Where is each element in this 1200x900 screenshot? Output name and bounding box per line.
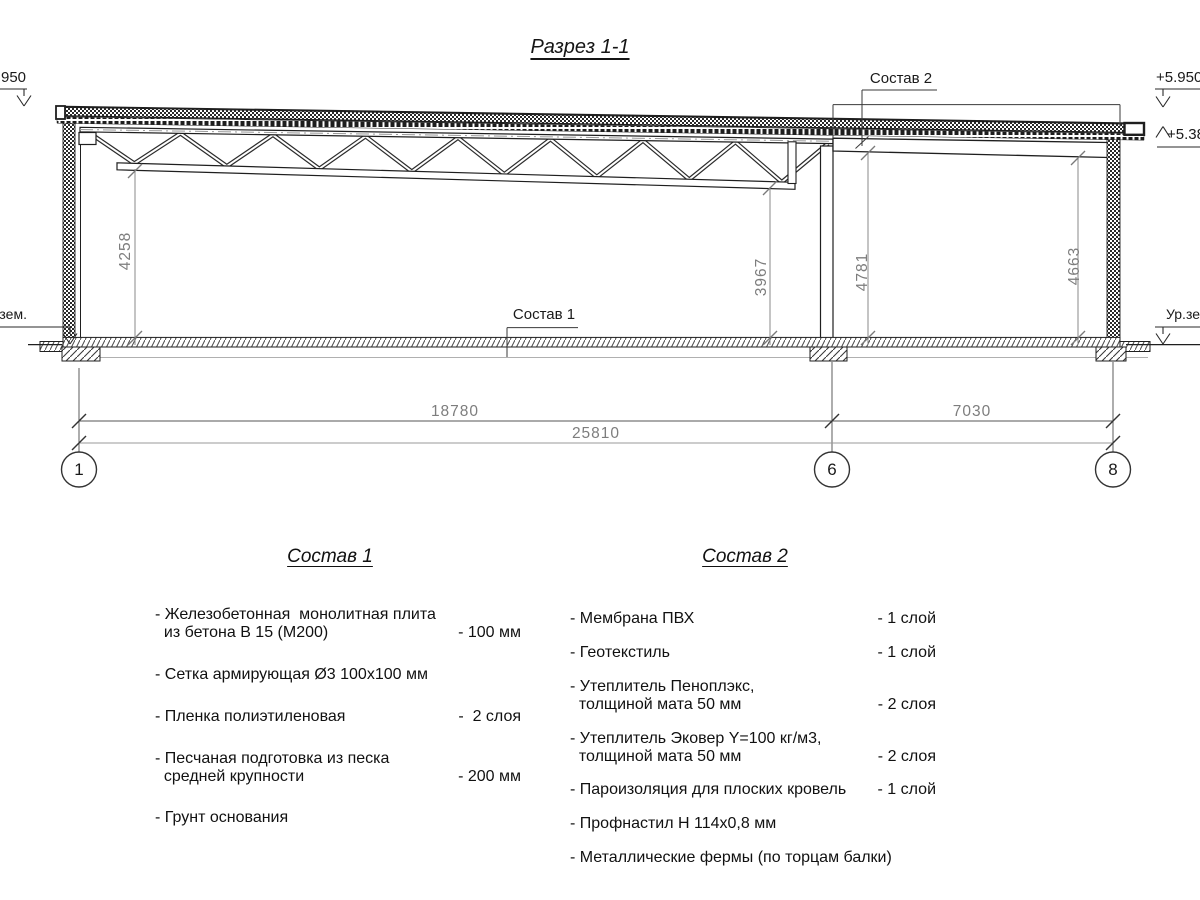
roof-left-cap (56, 106, 65, 119)
spec-item-value: - 1 слой (870, 610, 936, 628)
spec1-title: Состав 1 (230, 546, 430, 568)
spec-item-text: - Песчаная подготовка из песка средней к… (155, 750, 389, 786)
dim-height-4781: 4781 (854, 237, 872, 307)
roof-right-cap (1125, 123, 1145, 135)
roof-beam (833, 138, 1108, 157)
spec-item-value: - 2 слоя (870, 696, 936, 714)
spec-item: - Утеплитель Эковер Y=100 кг/м3, толщино… (570, 730, 936, 766)
spec2-title: Состав 2 (645, 546, 845, 568)
spec-item: - Пароизоляция для плоских кровель- 1 сл… (570, 781, 936, 799)
elevation-left-value: +5.950 (0, 69, 26, 86)
right-wall (1107, 136, 1120, 338)
axis-label-1: 1 (66, 460, 92, 480)
spec-item-value: - 2 слоя (870, 748, 936, 766)
spec-item-value: - 1 слой (870, 781, 936, 799)
spec-item-value: - 2 слоя (450, 708, 521, 726)
axis-label-6: 6 (819, 460, 845, 480)
spec-item: - Грунт основания (155, 809, 521, 827)
steel-truss (79, 127, 833, 189)
spec-item-text: - Утеплитель Эковер Y=100 кг/м3, толщино… (570, 730, 821, 766)
column-axis-6 (821, 146, 834, 338)
spec-item-value: - 100 мм (450, 624, 521, 642)
dim-height-4258: 4258 (117, 216, 135, 286)
axis-label-8: 8 (1100, 460, 1126, 480)
dim-span-18780: 18780 (385, 403, 525, 421)
foundations (62, 347, 1126, 361)
dim-height-4663: 4663 (1066, 231, 1084, 301)
spec-item-text: - Металлические фермы (по торцам балки) (570, 849, 892, 867)
composition2-callout: Состав 2 (863, 70, 939, 87)
drawing-title: Разрез 1-1 (460, 36, 700, 59)
left-wall (63, 107, 81, 338)
spec-item: - Утеплитель Пеноплэкс, толщиной мата 50… (570, 678, 936, 714)
dim-span-7030: 7030 (902, 403, 1042, 421)
spec-item: - Сетка армирующая Ø3 100х100 мм (155, 666, 521, 684)
spec1-list: - Железобетонная монолитная плита из бет… (155, 606, 521, 851)
spec-item: - Пленка полиэтиленовая- 2 слоя (155, 708, 521, 726)
spec-item: - Металлические фермы (по торцам балки) (570, 849, 936, 867)
spec-item: - Геотекстиль- 1 слой (570, 644, 936, 662)
spec-item-text: - Пароизоляция для плоских кровель (570, 781, 846, 799)
spec-item-text: - Профнастил Н 114х0,8 мм (570, 815, 776, 833)
spec-item-text: - Сетка армирующая Ø3 100х100 мм (155, 666, 428, 684)
spec-item-text: - Железобетонная монолитная плита из бет… (155, 606, 436, 642)
spec-item: - Мембрана ПВХ- 1 слой (570, 610, 936, 628)
spec-item: - Железобетонная монолитная плита из бет… (155, 606, 521, 642)
vertical-dimensions (128, 146, 1085, 345)
ground-level-label-right: Ур.зем. (1166, 306, 1200, 322)
spec-item-text: - Мембрана ПВХ (570, 610, 694, 628)
spec-item: - Профнастил Н 114х0,8 мм (570, 815, 936, 833)
spec-item-text: - Грунт основания (155, 809, 288, 827)
floor-slab (40, 337, 1150, 351)
dim-height-3967: 3967 (753, 242, 771, 312)
elevation-right-mid-value: +5.380 (1167, 126, 1200, 143)
composition1-callout: Состав 1 (506, 306, 582, 323)
ground-level-label-left: Ур.зем. (0, 306, 27, 322)
dim-total-25810: 25810 (526, 425, 666, 443)
spec-item-value: - 200 мм (450, 768, 521, 786)
spec-item-value: - 1 слой (870, 644, 936, 662)
drawing-sheet: Разрез 1-1 Состав 2 Состав 1 +5.950 +5.9… (0, 0, 1200, 900)
spec-item: - Песчаная подготовка из песка средней к… (155, 750, 521, 786)
spec-item-text: - Пленка полиэтиленовая (155, 708, 345, 726)
spec-item-text: - Утеплитель Пеноплэкс, толщиной мата 50… (570, 678, 754, 714)
spec-item-text: - Геотекстиль (570, 644, 670, 662)
elevation-right-top-value: +5.950 (1156, 69, 1200, 86)
spec2-list: - Мембрана ПВХ- 1 слой- Геотекстиль- 1 с… (570, 610, 936, 883)
